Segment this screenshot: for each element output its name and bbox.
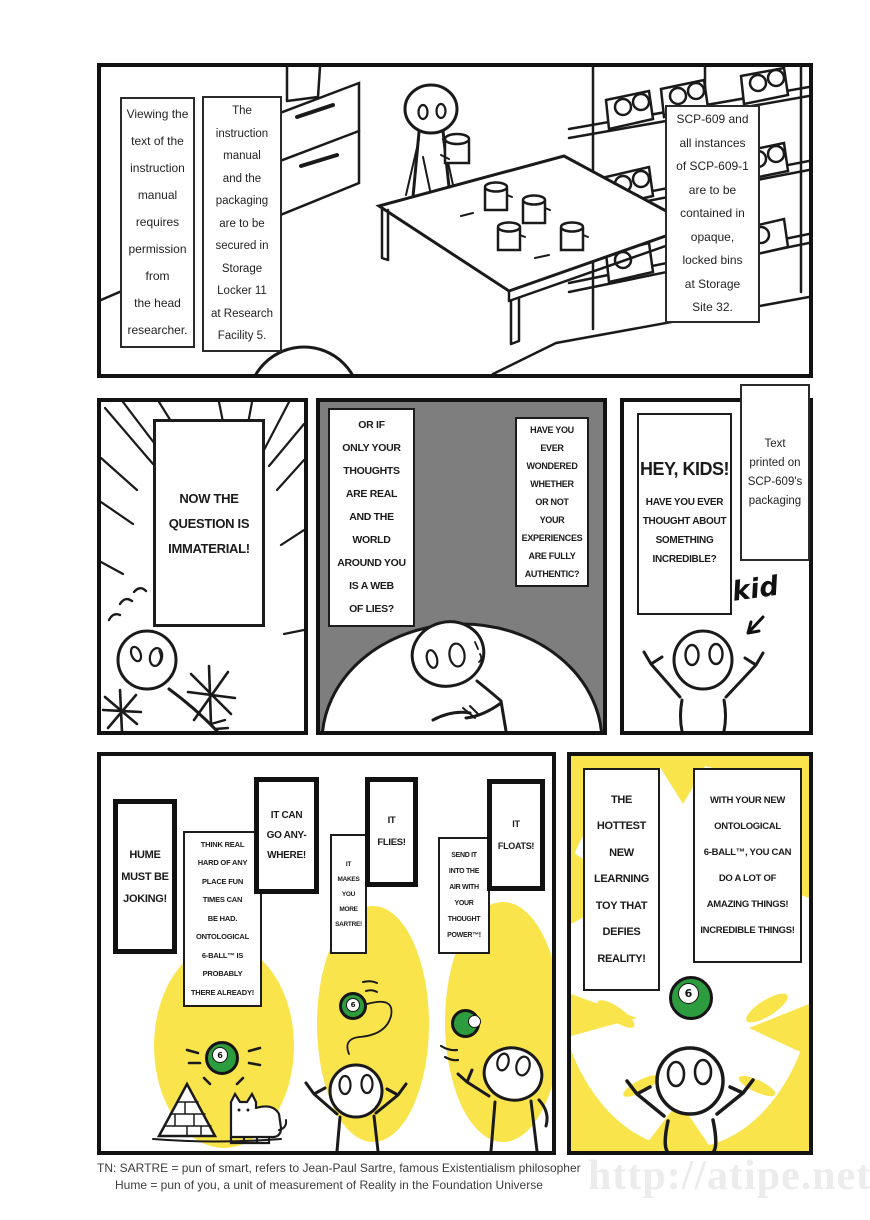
panel-doubt: OR IF ONLY YOUR THOUGHTS ARE REAL AND TH… [316,398,607,735]
translator-note-line1: TN: SARTRE = pun of smart, refers to Jea… [97,1161,581,1175]
panel-immaterial: NOW THE QUESTION IS IMMATERIAL! [97,398,308,735]
panel-features: 6 6 HUME MUST BE JOKING! THINK REAL HARD… [97,752,556,1155]
ball-number: 6 [678,983,699,1004]
advert-6ball: 6 [669,976,713,1020]
ball-number: 6 [212,1047,228,1063]
ball-number: 6 [346,998,360,1012]
speech-hume-joking: HUME MUST BE JOKING! [113,799,177,954]
caption-viewing-permission: Viewing the text of the instruction manu… [120,97,195,348]
panel-advert: 6 THE HOTTEST NEW LEARNING TOY THAT DEFI… [567,752,813,1155]
speech-thought-power: SEND IT INTO THE AIR WITH YOUR THOUGHT P… [438,837,490,954]
panel-containment-room: Viewing the text of the instruction manu… [97,63,813,378]
hey-kids-title: HEY, KIDS! [640,460,729,479]
caption-scp609-containment: SCP-609 and all instances of SCP-609-1 a… [665,105,760,323]
researcher-character [405,85,469,197]
speech-hottest-toy: THE HOTTEST NEW LEARNING TOY THAT DEFIES… [583,768,660,991]
translator-note-line2: Hume = pun of you, a unit of measurement… [115,1178,543,1192]
speech-more-sartre: IT MAKES YOU MORE SARTRE! [330,834,367,954]
speech-think-real-hard: THINK REAL HARD OF ANY PLACE FUN TIMES C… [183,831,262,1007]
watermark-url: http://atipe.net/ [588,1152,870,1200]
speech-it-floats: IT FLOATS! [487,779,545,891]
speech-hey-kids: HEY, KIDS! HAVE YOU EVER THOUGHT ABOUT S… [637,413,732,615]
floating-6ball [451,1009,480,1038]
scribble-left [103,690,141,731]
speech-web-of-lies: OR IF ONLY YOUR THOUGHTS ARE REAL AND TH… [328,408,415,627]
speech-immaterial: NOW THE QUESTION IS IMMATERIAL! [153,419,265,627]
speech-authentic: HAVE YOU EVER WONDERED WHETHER OR NOT YO… [515,417,589,587]
comic-page: Viewing the text of the instruction manu… [0,0,870,1220]
worry-marks [109,588,146,620]
caption-packaging-text: Text printed on SCP-609's packaging [740,384,810,561]
kid-arrow [748,617,763,633]
flying-6ball: 6 [339,992,367,1020]
speech-it-flies: IT FLIES! [365,777,418,887]
ontological-6ball: 6 [205,1041,239,1075]
speech-with-your-new: WITH YOUR NEW ONTOLOGICAL 6-BALL™, YOU C… [693,768,802,963]
ball-highlight [468,1015,481,1028]
caption-storage-locker: The instruction manual and the packaging… [202,96,282,352]
kid-character [644,631,763,731]
scribble-right [188,666,235,724]
hey-kids-body: HAVE YOU EVER THOUGHT ABOUT SOMETHING IN… [643,493,727,569]
speech-go-anywhere: IT CAN GO ANY- WHERE! [254,777,319,894]
